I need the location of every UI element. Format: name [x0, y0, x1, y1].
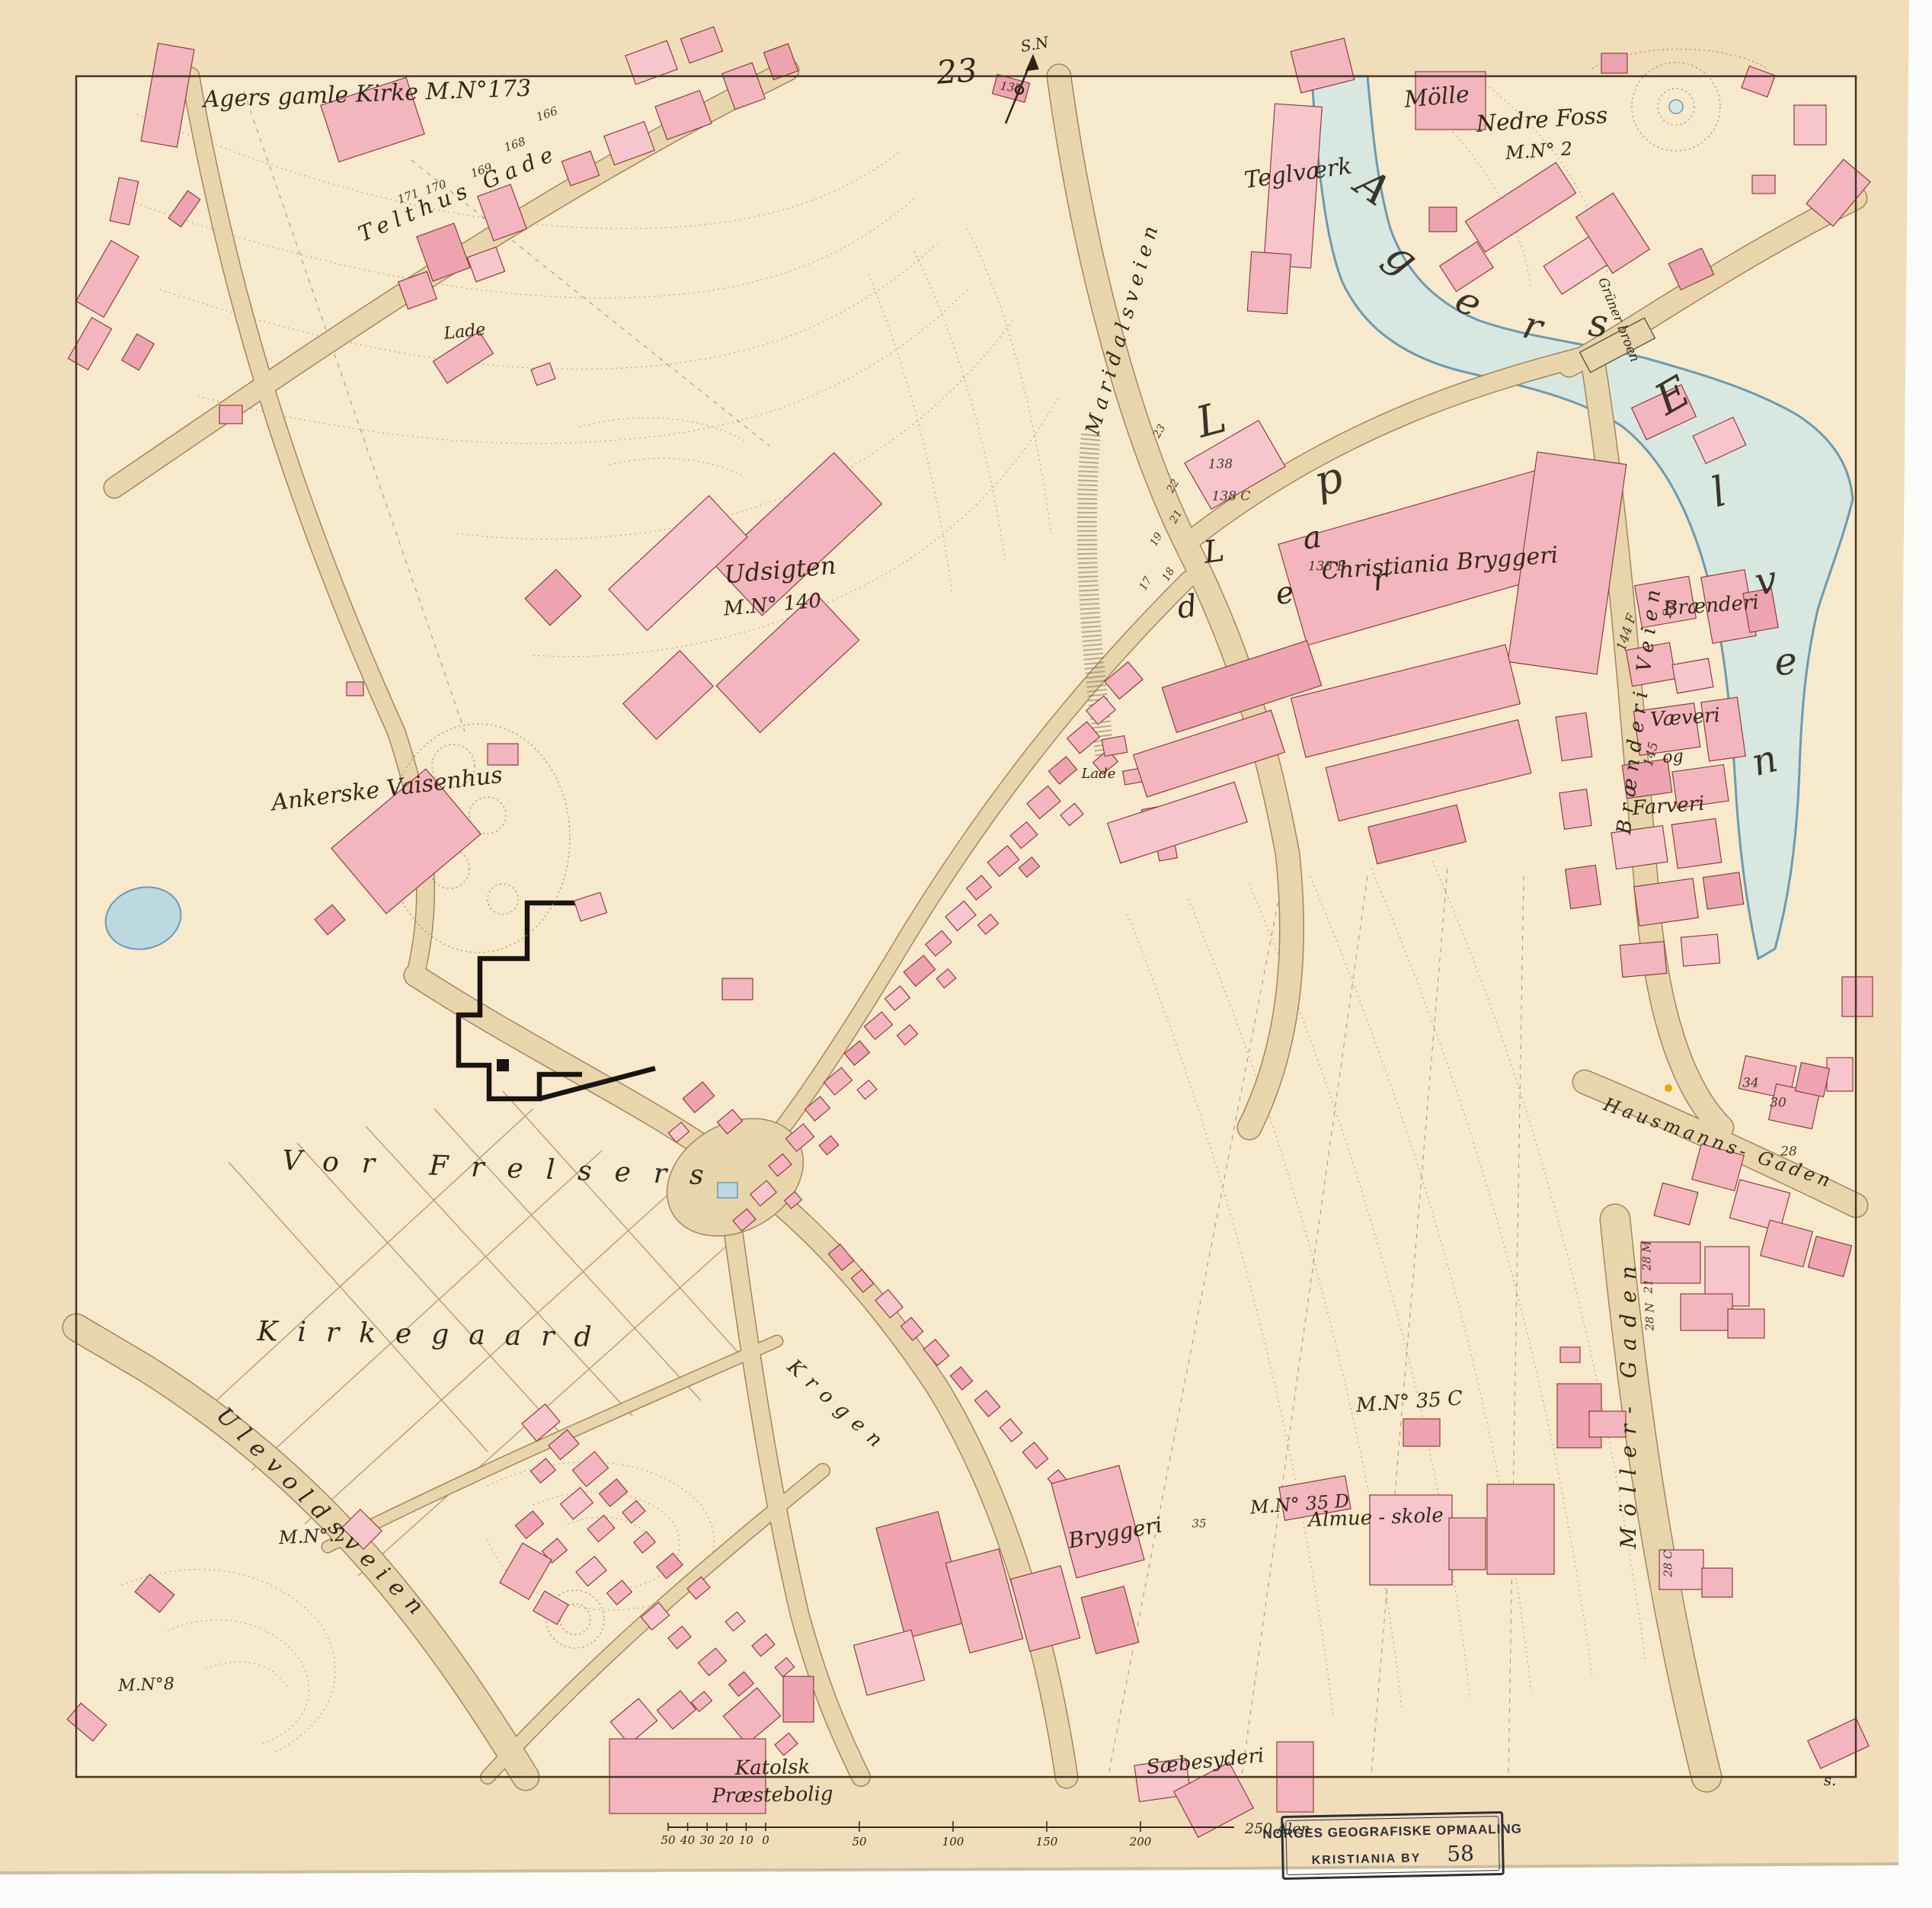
building: [1842, 977, 1873, 1016]
building: [347, 682, 363, 696]
stamp-sheet-number: 58: [1447, 1840, 1474, 1866]
scale-bar-part: 100: [942, 1835, 964, 1849]
building: [1611, 826, 1668, 869]
building: [1560, 1347, 1580, 1362]
building: [722, 978, 753, 1000]
building: [1634, 879, 1698, 926]
building: [1743, 588, 1778, 632]
scale-bar-part: 30: [700, 1833, 715, 1847]
park-fountain: [1669, 100, 1683, 114]
building: [1641, 1242, 1700, 1283]
building: [1681, 1294, 1732, 1330]
building: [1449, 1518, 1486, 1570]
building: [1429, 207, 1457, 232]
scale-bar-part: 20: [718, 1833, 734, 1847]
building: [1601, 53, 1627, 73]
scale-bar-part: 200: [1129, 1835, 1152, 1849]
building: [1703, 872, 1743, 909]
building: [1620, 942, 1666, 978]
building: [1672, 765, 1729, 808]
stamp-title: NORGES GEOGRAFISKE OPMAALING: [1262, 1821, 1522, 1842]
building: [1795, 1062, 1829, 1096]
archive-stamp: NORGES GEOGRAFISKE OPMAALING KRISTIANIA …: [1281, 1811, 1505, 1880]
building: [1633, 703, 1700, 756]
boundary-marker: [497, 1059, 509, 1071]
building: [783, 1676, 814, 1722]
scale-bar-part: 40: [680, 1833, 696, 1847]
building: [1827, 1058, 1853, 1091]
scale-bar-part: 0: [762, 1833, 769, 1847]
building: [1752, 175, 1775, 194]
building: [1701, 697, 1745, 761]
building: [1556, 712, 1592, 760]
building: [1728, 1309, 1764, 1338]
building: [219, 405, 242, 424]
building: [1671, 818, 1722, 869]
scale-bar-part: 10: [739, 1833, 754, 1847]
building: [488, 744, 518, 765]
map-canvas: 5040302010050100150200250 Alen: [0, 0, 1932, 1908]
yellow-mark: [1665, 1084, 1672, 1092]
building: [1626, 642, 1675, 686]
scale-bar-part: 50: [661, 1833, 676, 1847]
building: [1622, 759, 1672, 799]
building: [1635, 576, 1697, 628]
building: [1247, 251, 1291, 313]
building: [1403, 1419, 1440, 1446]
scale-bar-part: 150: [1036, 1835, 1058, 1849]
scale-bar-part: 50: [852, 1835, 867, 1849]
building: [1794, 105, 1826, 145]
building: [1702, 1568, 1732, 1597]
building: [1102, 736, 1127, 757]
building: [1659, 1550, 1703, 1589]
building: [1589, 1411, 1626, 1437]
building: [1672, 658, 1713, 693]
building: [1415, 72, 1486, 130]
map-sheet: 5040302010050100150200250 Alen Agers gam…: [0, 0, 1932, 1908]
building: [1487, 1484, 1554, 1574]
water-basin: [718, 1183, 737, 1198]
stamp-city: KRISTIANIA BY: [1312, 1852, 1422, 1868]
building: [1681, 934, 1719, 966]
building: [1559, 789, 1591, 830]
building: [1566, 865, 1601, 908]
building: [1370, 1495, 1452, 1585]
